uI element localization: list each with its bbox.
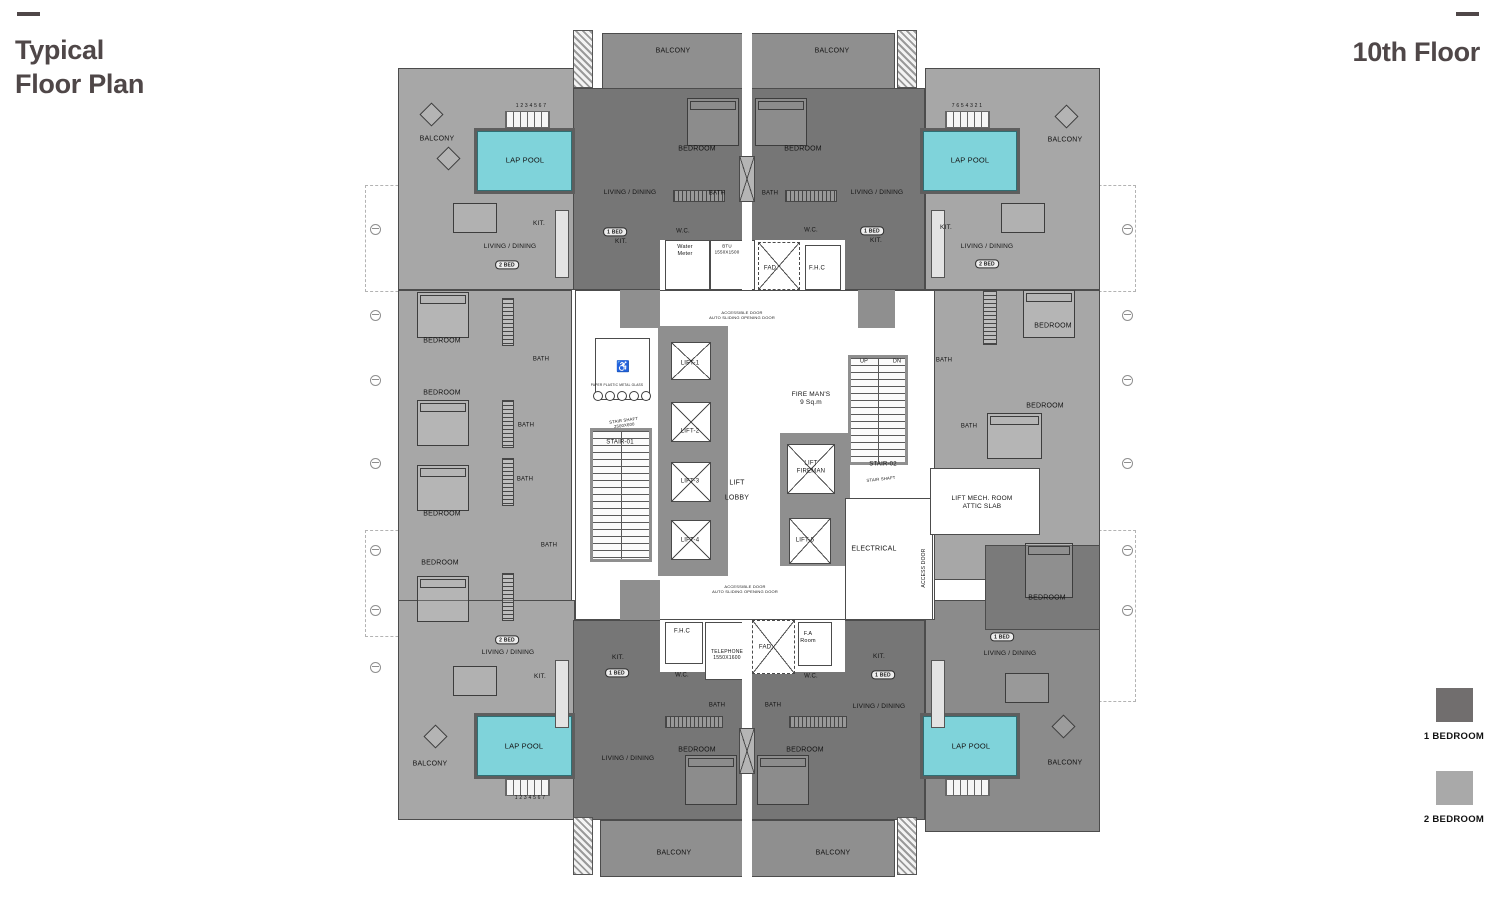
page: { "header": { "title": "Typical\nFloor P…: [0, 0, 1500, 900]
room-label: BALCONY: [656, 48, 691, 57]
room-label: LIVING / DINING: [853, 703, 905, 711]
room-label: LIFT FIREMAN: [797, 461, 825, 476]
room-label: Water Meter: [677, 244, 692, 258]
room-label: LIFT LOBBY: [725, 476, 749, 505]
room-label: BATH: [517, 476, 533, 484]
room-label: BEDROOM: [784, 146, 822, 155]
room-label: LIVING / DINING: [484, 243, 536, 251]
room-label: ACCESS DOOR: [921, 548, 927, 587]
room-label: STAIR SHAFT: [866, 475, 896, 483]
room-label: BALCONY: [1048, 760, 1083, 769]
room-label: BATH: [518, 422, 534, 430]
room-label: DN: [893, 359, 901, 366]
room-label: ACCESSIBLE DOOR AUTO SLIDING OPENING DOO…: [712, 584, 778, 594]
room-label: W.C.: [676, 228, 690, 236]
room-label: LAP POOL: [505, 741, 544, 750]
legend-label-1bed: 1 BEDROOM: [1408, 731, 1500, 742]
room-label: BEDROOM: [678, 146, 716, 155]
floor-label: 10th Floor: [1352, 36, 1480, 70]
room-label: STAIR-02: [869, 461, 897, 469]
unit-type-tag: 2 BED: [495, 260, 519, 269]
room-label: BALCONY: [1048, 137, 1083, 146]
room-label: LAP POOL: [951, 155, 990, 164]
room-label: LIVING / DINING: [482, 649, 534, 657]
room-label: KIT.: [940, 224, 952, 232]
room-label: BEDROOM: [1034, 323, 1072, 332]
room-label: BALCONY: [815, 48, 850, 57]
legend-label-2bed: 2 BEDROOM: [1408, 814, 1500, 825]
legend: 1 BEDROOM 2 BEDROOM: [1408, 688, 1500, 854]
room-label: KIT.: [612, 654, 624, 662]
room-label: BEDROOM: [423, 338, 461, 347]
room-label: LIFT-4: [681, 537, 700, 545]
room-label: BALCONY: [816, 850, 851, 859]
room-label: LIFT-5: [796, 537, 815, 545]
room-label: BEDROOM: [1028, 595, 1066, 604]
room-label: BATH: [936, 357, 952, 365]
room-label: LIVING / DINING: [604, 189, 656, 197]
room-label: BEDROOM: [423, 390, 461, 399]
room-label: LAP POOL: [506, 155, 545, 164]
room-label: BTU 1550X1500: [715, 243, 740, 254]
room-label: KIT.: [534, 673, 546, 681]
room-label: LIFT-3: [681, 478, 700, 486]
room-label: LIVING / DINING: [851, 189, 903, 197]
room-label: LIVING / DINING: [602, 755, 654, 763]
room-label: BALCONY: [420, 136, 455, 145]
room-label: TELEPHONE 1550X1600: [711, 649, 743, 662]
room-label: BATH: [533, 356, 549, 364]
title-rule-left: [17, 12, 40, 16]
room-label: 1 2 3 4 5 6 7: [516, 103, 546, 109]
room-label: LIFT-1: [681, 360, 700, 368]
room-label: PAPER PLASTIC METAL GLASS: [591, 383, 643, 387]
room-label: LIVING / DINING: [984, 650, 1036, 658]
room-label: FAD.: [759, 644, 773, 652]
room-label: BATH: [765, 702, 781, 710]
room-label: KIT.: [533, 220, 545, 228]
room-label: UP: [860, 359, 868, 366]
room-label: F.H.C: [674, 628, 690, 636]
room-label: BATH: [709, 702, 725, 710]
room-label: W.C.: [675, 672, 689, 680]
room-label: F.A Room: [800, 631, 815, 645]
room-label: BEDROOM: [423, 511, 461, 520]
room-label: BATH: [541, 542, 557, 550]
legend-swatch-2bed: [1436, 771, 1473, 805]
room-label: KIT.: [615, 238, 627, 246]
room-label: BALCONY: [413, 761, 448, 770]
room-label: LAP POOL: [952, 741, 991, 750]
room-label: BEDROOM: [786, 747, 824, 756]
room-label: FAD.: [764, 265, 778, 273]
room-label: LIFT-2: [681, 428, 700, 436]
room-label: ACCESSIBLE DOOR AUTO SLIDING OPENING DOO…: [709, 310, 775, 320]
title-rule-right: [1456, 12, 1479, 16]
room-label: LIVING / DINING: [961, 243, 1013, 251]
room-label: BEDROOM: [421, 560, 459, 569]
room-label: STAIR SHAFT 2500X600: [609, 416, 639, 430]
unit-type-tag: 1 BED: [871, 670, 895, 679]
unit-type-tag: 1 BED: [603, 227, 627, 236]
page-title: Typical Floor Plan: [15, 34, 144, 102]
room-label: ELECTRICAL: [851, 546, 896, 555]
room-label: BEDROOM: [1026, 403, 1064, 412]
room-label: BEDROOM: [678, 747, 716, 756]
room-label: KIT.: [870, 237, 882, 245]
room-label: 7 6 5 4 3 2 1: [952, 103, 982, 109]
room-label: LIFT MECH. ROOM ATTIC SLAB: [951, 495, 1012, 511]
unit-type-tag: 2 BED: [495, 635, 519, 644]
room-label: W.C.: [804, 673, 818, 681]
legend-swatch-1bed: [1436, 688, 1473, 722]
room-label: KIT.: [873, 653, 885, 661]
room-label: F.H.C: [809, 265, 825, 273]
room-label: BATH: [961, 423, 977, 431]
floor-plan: BALCONYBALCONYBALCONYBALCONYLAP POOLLAP …: [365, 28, 1135, 878]
unit-type-tag: 1 BED: [860, 226, 884, 235]
room-label: 1 2 3 4 5 6 7: [515, 795, 545, 801]
unit-type-tag: 2 BED: [975, 259, 999, 268]
room-label: BALCONY: [657, 850, 692, 859]
room-label: STAIR-01: [606, 439, 634, 447]
labels-layer: BALCONYBALCONYBALCONYBALCONYLAP POOLLAP …: [365, 28, 1135, 878]
room-label: BATH: [709, 190, 725, 198]
unit-type-tag: 1 BED: [990, 632, 1014, 641]
unit-type-tag: 1 BED: [605, 668, 629, 677]
room-label: BATH: [762, 190, 778, 198]
room-label: ♿: [616, 361, 630, 375]
room-label: FIRE MAN'S 9 Sq.m: [792, 391, 831, 407]
room-label: W.C.: [804, 227, 818, 235]
